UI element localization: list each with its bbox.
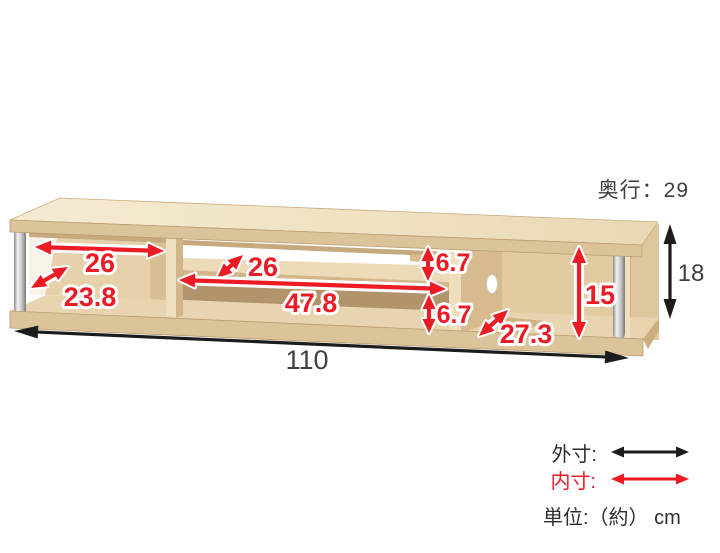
left-metal-pole — [14, 229, 26, 319]
label-shelf-depth: 26 — [248, 252, 278, 282]
inner-arrow-right-height — [572, 247, 586, 338]
label-lower-height: 6.7 — [437, 301, 472, 329]
dimension-diagram-svg: 26 23.8 26 47.8 6.7 6.7 15 27.3 110 18 奥… — [0, 0, 720, 553]
label-middle-width: 47.8 — [285, 288, 338, 318]
legend-unit-label: 単位:（約） cm — [543, 506, 681, 529]
legend-inner-label: 内寸: — [550, 470, 596, 493]
label-left-width: 26 — [85, 248, 115, 278]
label-outer-height: 18 — [678, 260, 705, 287]
label-right-depth: 27.3 — [500, 319, 553, 349]
legend: 外寸: 内寸: 単位:（約） cm — [543, 443, 681, 529]
label-upper-height: 6.7 — [436, 249, 471, 277]
legend-outer-arrow — [611, 447, 689, 458]
product-dimension-diagram: 26 23.8 26 47.8 6.7 6.7 15 27.3 110 18 奥… — [0, 0, 720, 553]
label-right-height: 15 — [585, 280, 615, 310]
label-left-depth: 23.8 — [64, 282, 117, 312]
outer-arrow-height — [664, 224, 677, 319]
legend-outer-label: 外寸: — [551, 443, 597, 466]
inner-arrow-upper-height — [422, 247, 435, 281]
left-divider — [166, 236, 183, 318]
label-depth-note: 奥行：29 — [598, 179, 689, 202]
inner-arrow-lower-height — [423, 295, 436, 333]
cable-hole — [487, 275, 498, 294]
label-outer-width: 110 — [285, 345, 328, 375]
left-divider-front-edge — [166, 238, 176, 318]
legend-inner-arrow — [611, 474, 689, 485]
